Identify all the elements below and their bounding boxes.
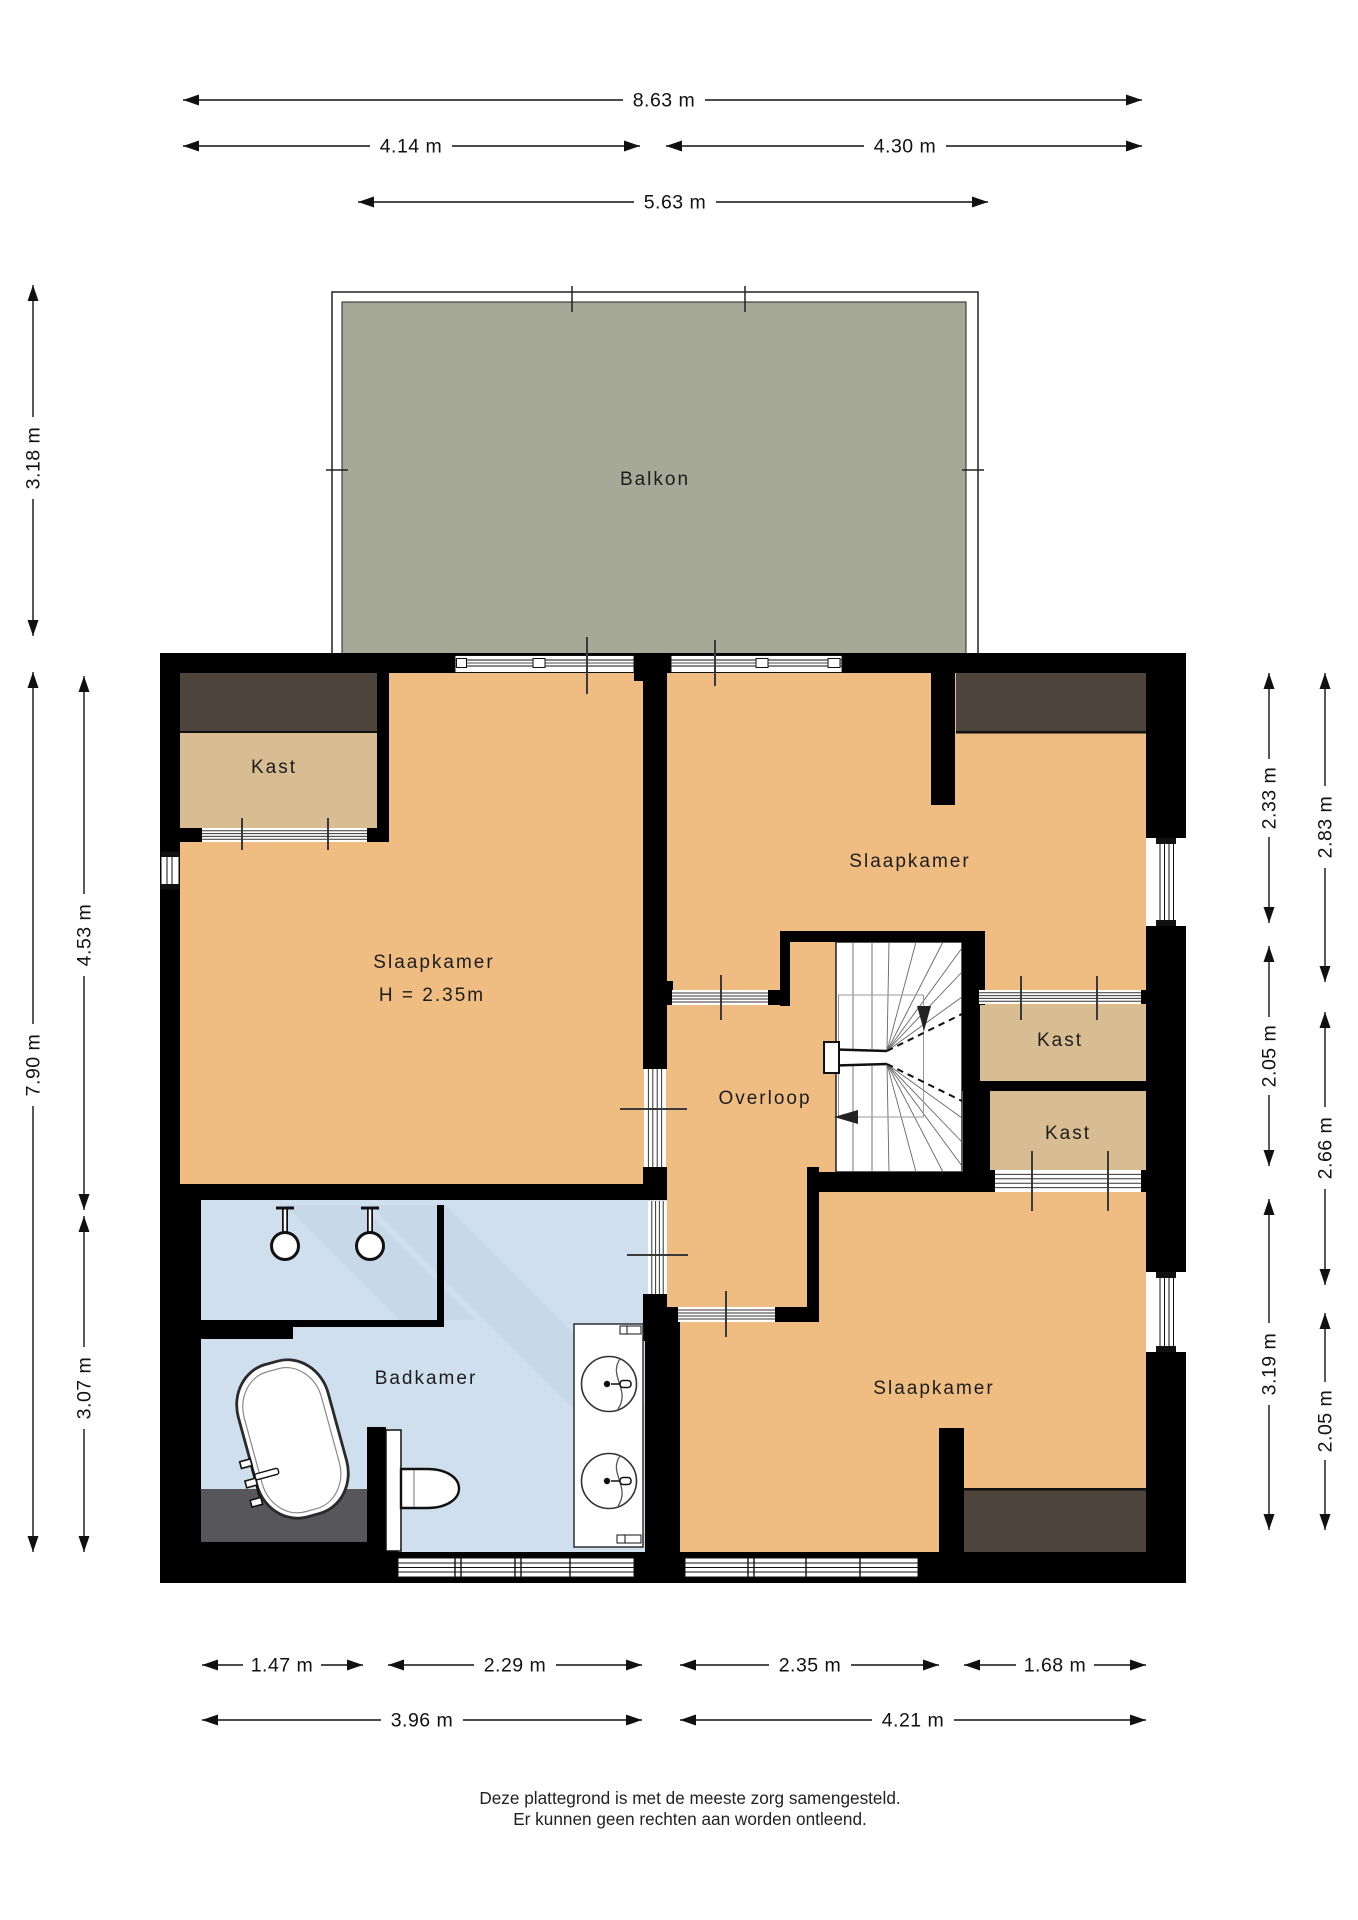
svg-text:7.90 m: 7.90 m <box>23 1034 45 1097</box>
svg-text:3.07 m: 3.07 m <box>74 1357 96 1420</box>
svg-text:Kast: Kast <box>1045 1123 1091 1144</box>
svg-text:8.63 m: 8.63 m <box>633 90 696 112</box>
svg-text:Kast: Kast <box>1037 1030 1083 1051</box>
svg-text:1.68 m: 1.68 m <box>1024 1655 1087 1677</box>
svg-text:2.05 m: 2.05 m <box>1315 1390 1337 1453</box>
svg-text:2.33 m: 2.33 m <box>1259 767 1281 830</box>
svg-text:Slaapkamer: Slaapkamer <box>849 851 970 872</box>
svg-text:H = 2.35m: H = 2.35m <box>379 985 485 1006</box>
svg-text:2.66 m: 2.66 m <box>1315 1117 1337 1180</box>
svg-text:Deze plattegrond is met de mee: Deze plattegrond is met de meeste zorg s… <box>479 1788 900 1808</box>
svg-text:Er kunnen geen rechten aan wor: Er kunnen geen rechten aan worden ontlee… <box>513 1809 867 1829</box>
svg-text:4.14 m: 4.14 m <box>380 136 443 158</box>
svg-text:Kast: Kast <box>251 757 297 778</box>
svg-text:2.35 m: 2.35 m <box>779 1655 842 1677</box>
svg-text:3.96 m: 3.96 m <box>391 1710 454 1732</box>
svg-text:3.19 m: 3.19 m <box>1259 1333 1281 1396</box>
svg-text:2.83 m: 2.83 m <box>1315 796 1337 859</box>
svg-text:Slaapkamer: Slaapkamer <box>873 1378 994 1399</box>
svg-text:4.53 m: 4.53 m <box>74 904 96 967</box>
svg-text:2.29 m: 2.29 m <box>484 1655 547 1677</box>
svg-text:4.30 m: 4.30 m <box>874 136 937 158</box>
svg-text:Badkamer: Badkamer <box>375 1368 478 1389</box>
svg-text:5.63 m: 5.63 m <box>644 192 707 214</box>
svg-text:1.47 m: 1.47 m <box>251 1655 314 1677</box>
svg-text:2.05 m: 2.05 m <box>1259 1025 1281 1088</box>
svg-text:Balkon: Balkon <box>620 469 690 490</box>
svg-text:4.21 m: 4.21 m <box>882 1710 945 1732</box>
svg-text:Slaapkamer: Slaapkamer <box>373 952 494 973</box>
svg-text:3.18 m: 3.18 m <box>23 427 45 490</box>
svg-text:Overloop: Overloop <box>718 1088 811 1109</box>
